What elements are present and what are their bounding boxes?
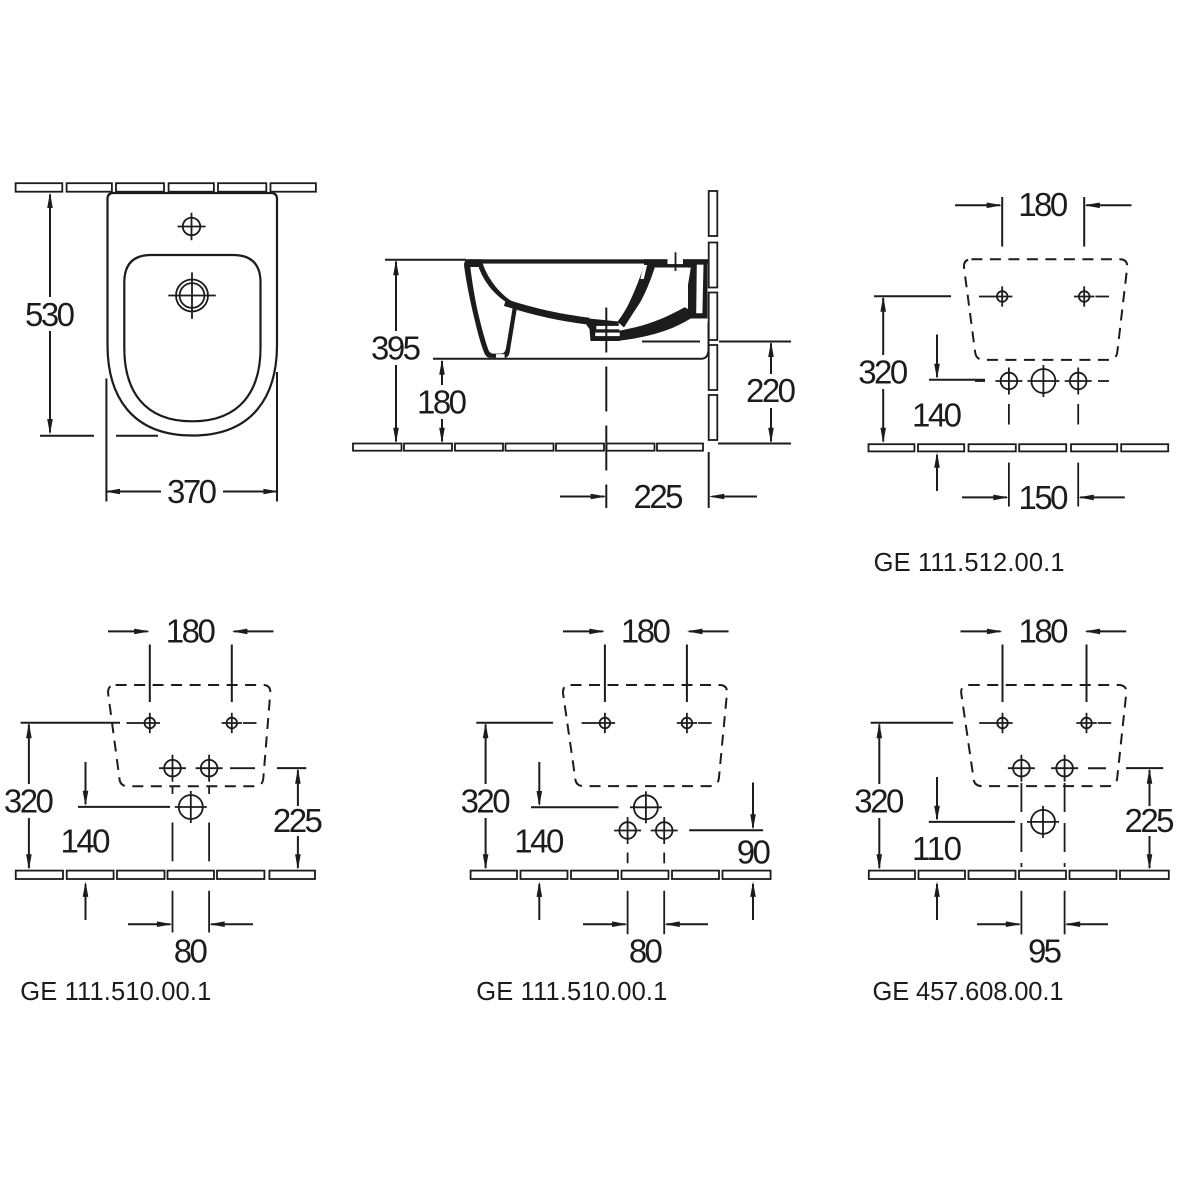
svg-text:GE 111.510.00.1: GE 111.510.00.1 xyxy=(20,978,211,1006)
svg-text:80: 80 xyxy=(629,933,663,970)
svg-text:180: 180 xyxy=(166,612,216,649)
svg-text:320: 320 xyxy=(854,783,904,820)
svg-text:GE 111.512.00.1: GE 111.512.00.1 xyxy=(874,549,1065,577)
svg-text:225: 225 xyxy=(273,802,323,839)
svg-text:140: 140 xyxy=(61,822,111,859)
svg-text:530: 530 xyxy=(25,296,75,333)
svg-text:180: 180 xyxy=(417,384,467,421)
svg-text:150: 150 xyxy=(1019,479,1069,516)
svg-text:395: 395 xyxy=(371,330,421,367)
svg-text:180: 180 xyxy=(1019,612,1069,649)
svg-text:80: 80 xyxy=(174,933,208,970)
svg-text:320: 320 xyxy=(4,783,54,820)
svg-text:180: 180 xyxy=(1018,186,1068,223)
svg-text:95: 95 xyxy=(1028,933,1062,970)
svg-text:225: 225 xyxy=(1125,802,1175,839)
svg-text:GE 111.510.00.1: GE 111.510.00.1 xyxy=(476,978,667,1006)
svg-text:140: 140 xyxy=(514,822,564,859)
svg-text:110: 110 xyxy=(912,830,962,867)
svg-text:180: 180 xyxy=(621,612,671,649)
svg-text:320: 320 xyxy=(858,354,908,391)
svg-text:370: 370 xyxy=(167,473,217,510)
svg-text:225: 225 xyxy=(634,478,684,515)
svg-text:90: 90 xyxy=(737,834,771,871)
svg-text:320: 320 xyxy=(461,783,511,820)
svg-text:140: 140 xyxy=(912,397,962,434)
svg-text:220: 220 xyxy=(746,372,796,409)
svg-text:GE 457.608.00.1: GE 457.608.00.1 xyxy=(873,978,1064,1006)
